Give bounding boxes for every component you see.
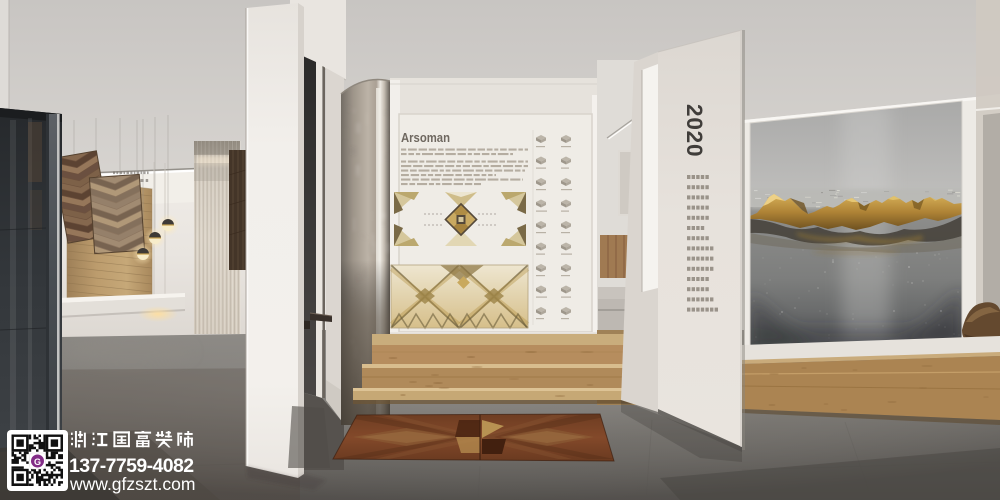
svg-text:www.gfzszt.com: www.gfzszt.com bbox=[69, 474, 195, 494]
svg-text:2020: 2020 bbox=[682, 104, 707, 157]
svg-text:G: G bbox=[34, 457, 41, 467]
svg-text:Arsoman: Arsoman bbox=[401, 131, 450, 145]
